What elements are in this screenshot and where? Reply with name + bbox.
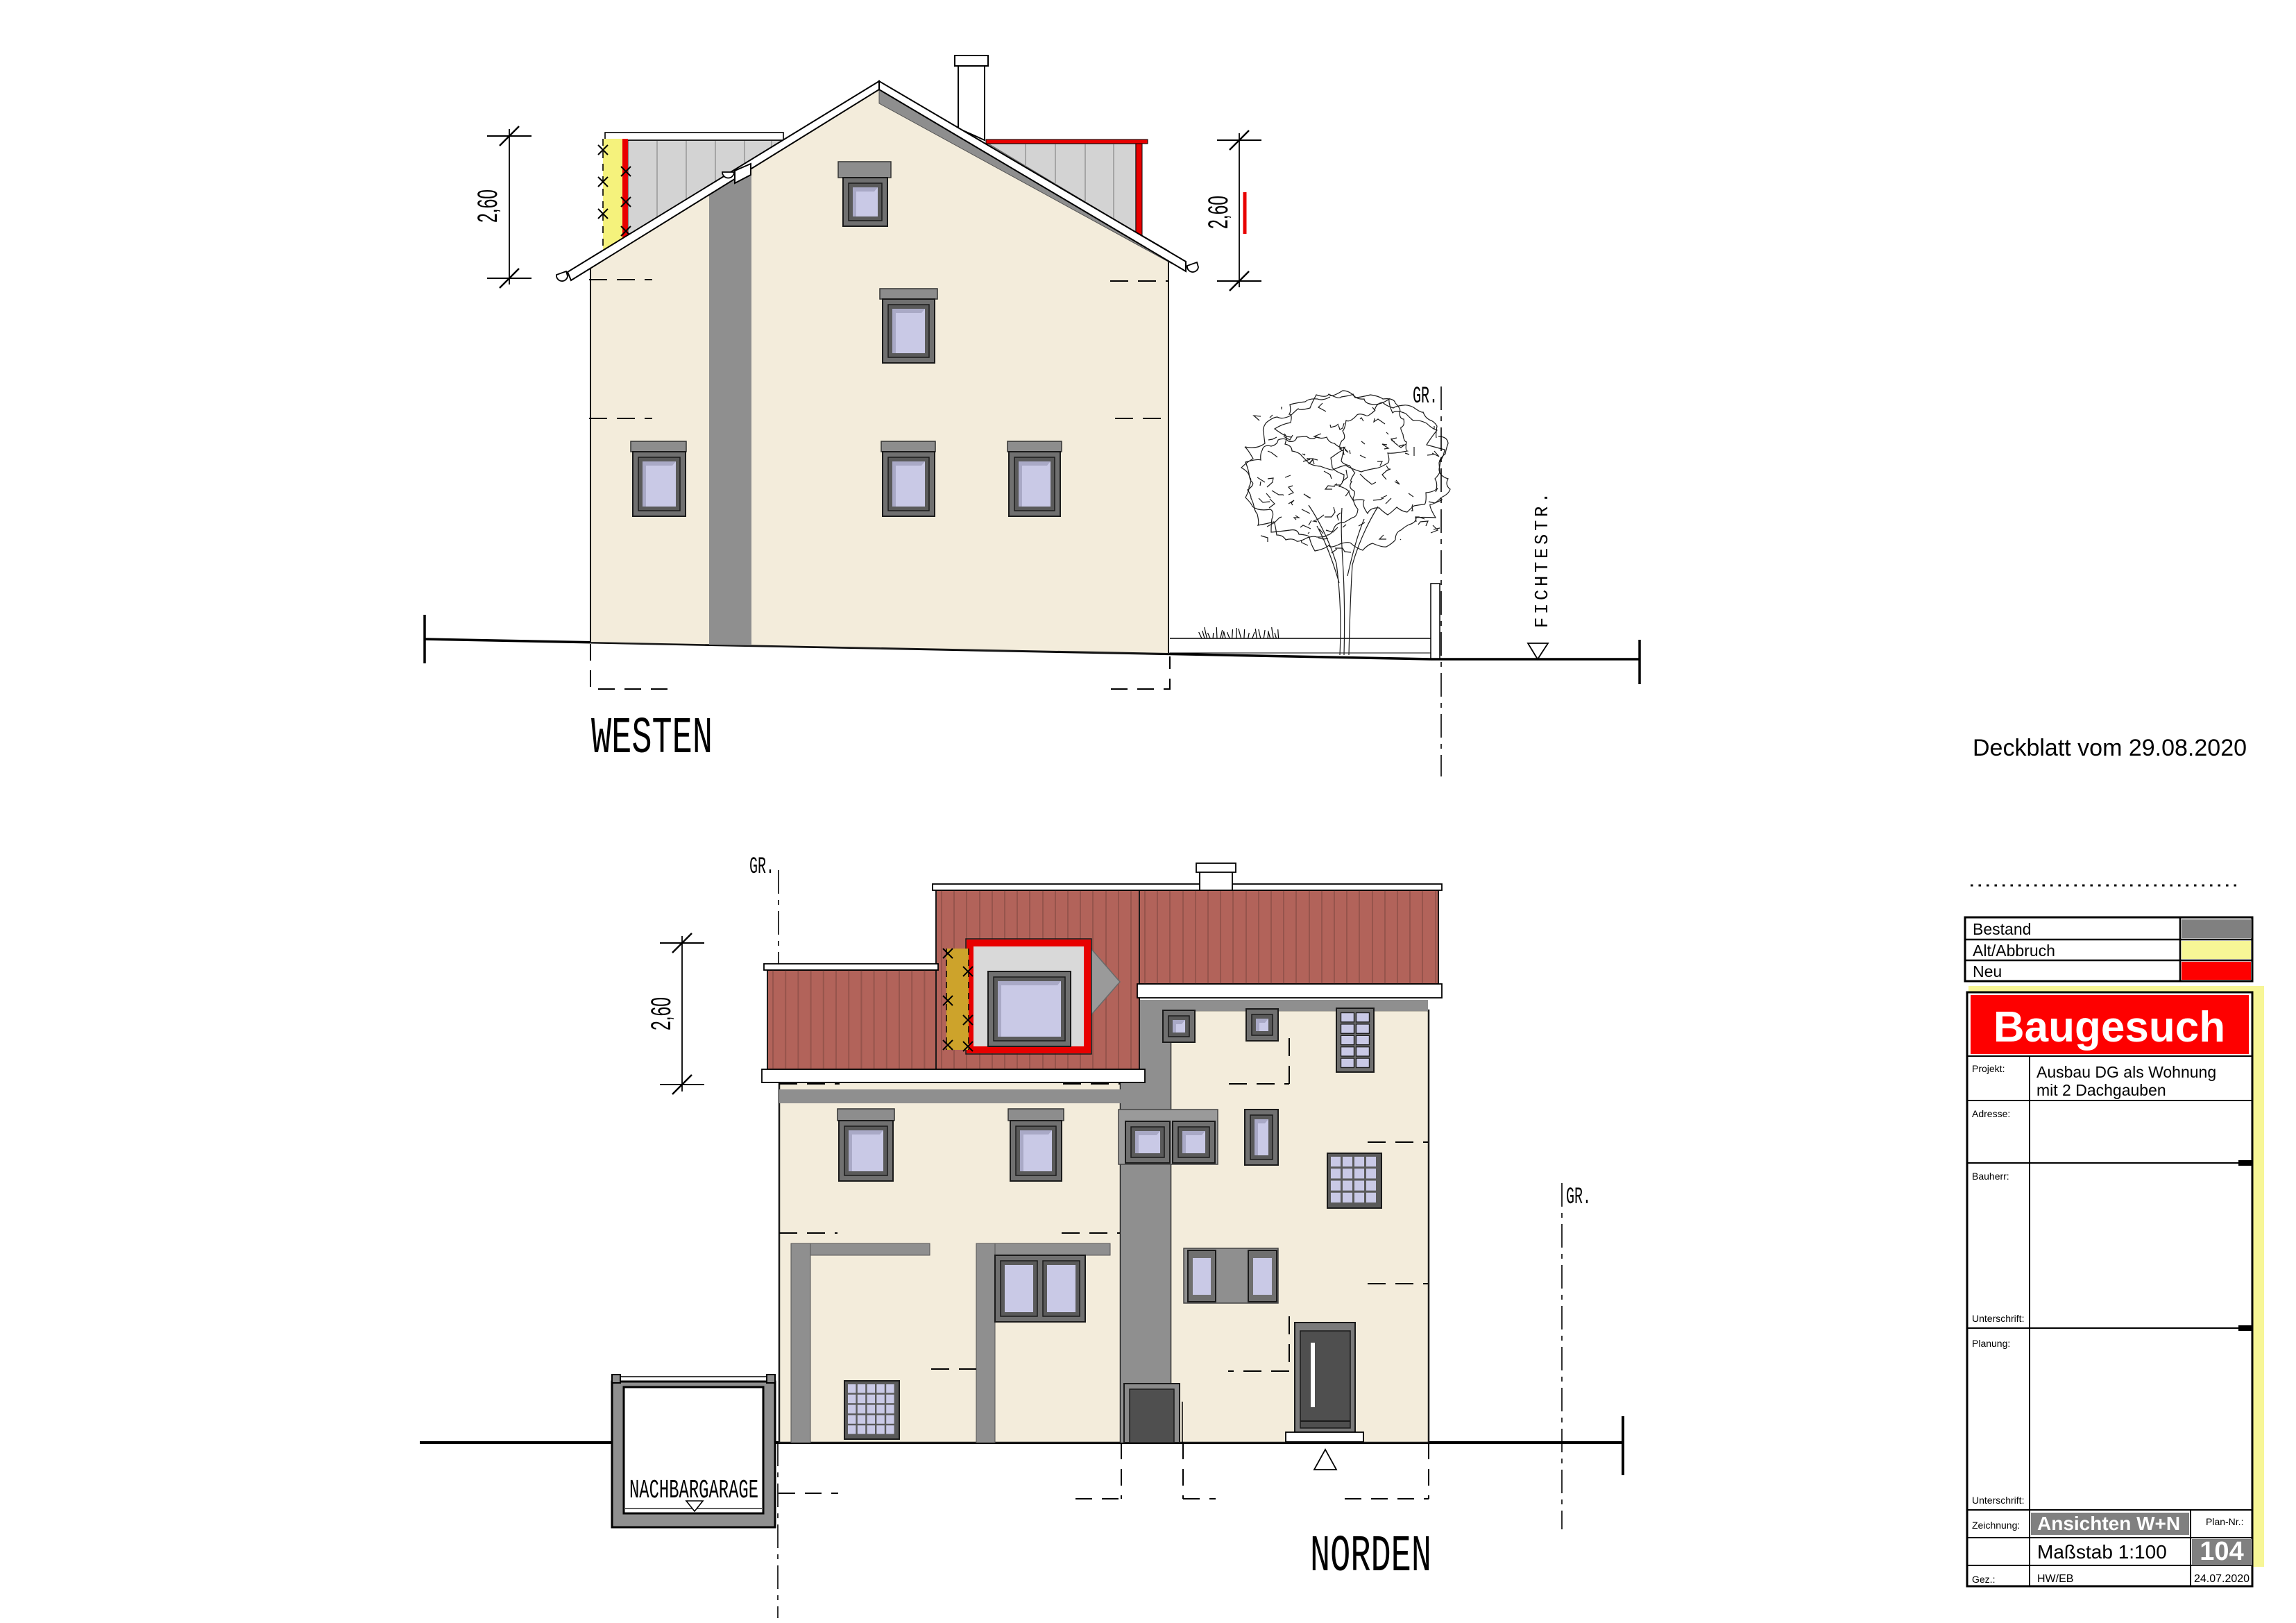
svg-text:Gez.:: Gez.: <box>1972 1574 1995 1585</box>
svg-text:FICHTESTR.: FICHTESTR. <box>1533 489 1554 628</box>
svg-text:Bauherr:: Bauherr: <box>1972 1171 2009 1182</box>
svg-text:24.07.2020: 24.07.2020 <box>2194 1573 2250 1585</box>
svg-text:2,60: 2,60 <box>1203 196 1234 229</box>
svg-text:NORDEN: NORDEN <box>1310 1528 1431 1586</box>
svg-text:Unterschrift:: Unterschrift: <box>1972 1313 2024 1324</box>
svg-text:mit 2 Dachgauben: mit 2 Dachgauben <box>2036 1081 2166 1099</box>
svg-text:Plan-Nr.:: Plan-Nr.: <box>2206 1516 2243 1527</box>
svg-text:WESTEN: WESTEN <box>591 710 713 768</box>
svg-text:Ansichten W+N: Ansichten W+N <box>2037 1513 2180 1534</box>
svg-text:Deckblatt vom 29.08.2020: Deckblatt vom 29.08.2020 <box>1973 735 2247 761</box>
svg-text:Bestand: Bestand <box>1973 920 2031 938</box>
svg-text:Ausbau DG als Wohnung: Ausbau DG als Wohnung <box>2036 1063 2216 1081</box>
svg-text:104: 104 <box>2200 1537 2243 1566</box>
svg-text:Projekt:: Projekt: <box>1972 1063 2005 1074</box>
svg-text:Maßstab 1:100: Maßstab 1:100 <box>2037 1541 2167 1563</box>
svg-text:Alt/Abbruch: Alt/Abbruch <box>1973 942 2055 960</box>
svg-text:Zeichnung:: Zeichnung: <box>1972 1520 2020 1531</box>
svg-text:Baugesuch: Baugesuch <box>1993 1003 2225 1051</box>
svg-text:Neu: Neu <box>1973 962 2002 980</box>
svg-text:Unterschrift:: Unterschrift: <box>1972 1495 2024 1506</box>
svg-text:2,60: 2,60 <box>646 997 677 1030</box>
svg-text:GR.: GR. <box>749 854 774 881</box>
svg-text:HW/EB: HW/EB <box>2037 1573 2073 1585</box>
svg-text:2,60: 2,60 <box>473 189 503 223</box>
svg-text:Planung:: Planung: <box>1972 1338 2010 1349</box>
svg-text:GR.: GR. <box>1566 1184 1591 1211</box>
svg-text:GR.: GR. <box>1413 384 1438 410</box>
svg-text:Adresse:: Adresse: <box>1972 1108 2010 1119</box>
